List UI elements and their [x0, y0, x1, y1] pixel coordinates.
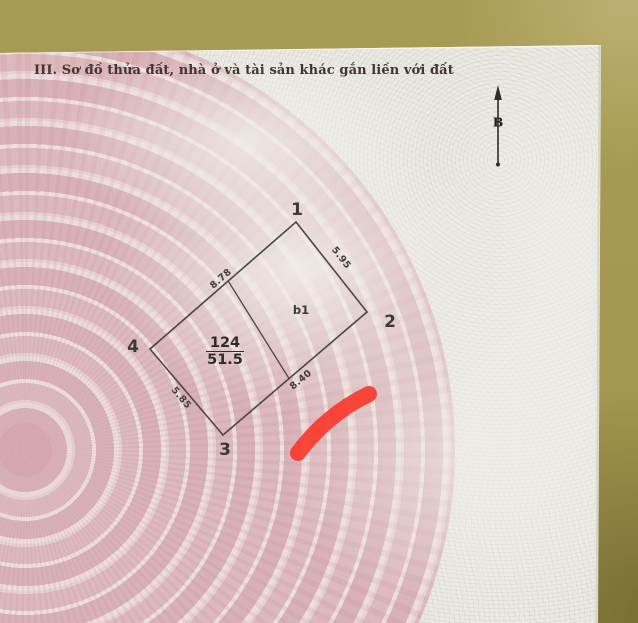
north-arrow-head-icon — [494, 85, 502, 100]
north-arrow-base-dot — [496, 163, 500, 167]
corner-label-1: 1 — [291, 200, 303, 220]
sub-area-label: b1 — [293, 303, 309, 317]
page-right-edge — [597, 45, 600, 623]
corner-label-3: 3 — [219, 440, 231, 460]
page-top-edge — [0, 44, 601, 51]
plot-number-area-label: 124 51.5 — [206, 335, 244, 369]
north-label: B — [493, 115, 504, 130]
corner-label-2: 2 — [384, 312, 396, 332]
corner-label-4: 4 — [127, 337, 139, 357]
section-title: III. Sơ đồ thửa đất, nhà ở và tài sản kh… — [34, 63, 474, 78]
plot-number: 124 — [206, 335, 244, 352]
plot-area: 51.5 — [206, 352, 244, 369]
certificate-page: III. Sơ đồ thửa đất, nhà ở và tài sản kh… — [0, 0, 638, 623]
plot-diagram — [0, 0, 638, 623]
red-marker-stroke — [298, 394, 369, 453]
scanned-certificate-photo: III. Sơ đồ thửa đất, nhà ở và tài sản kh… — [0, 0, 638, 623]
